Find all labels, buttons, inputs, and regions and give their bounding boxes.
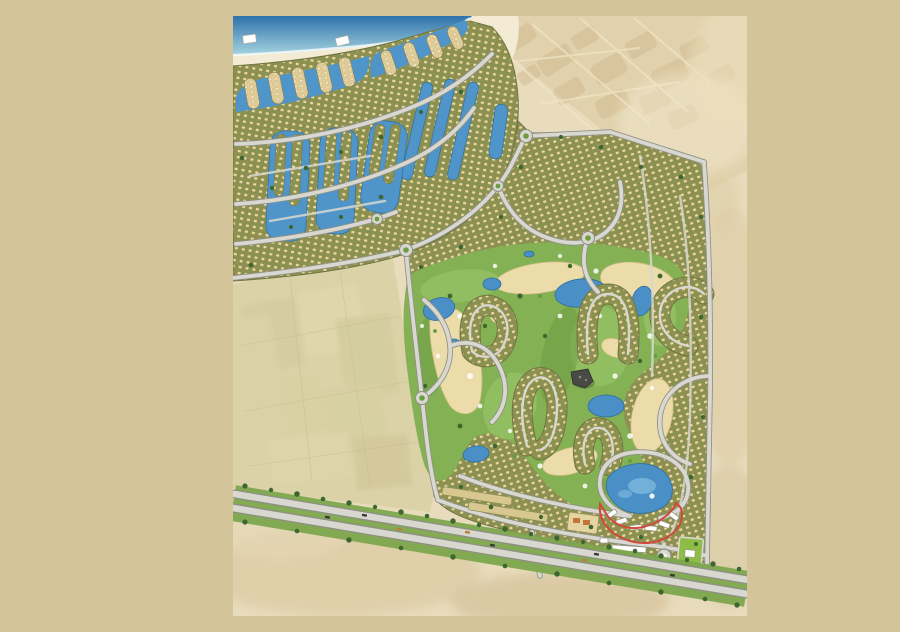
masterplan-canvas bbox=[40, 16, 900, 616]
masterplan-map bbox=[40, 16, 900, 616]
